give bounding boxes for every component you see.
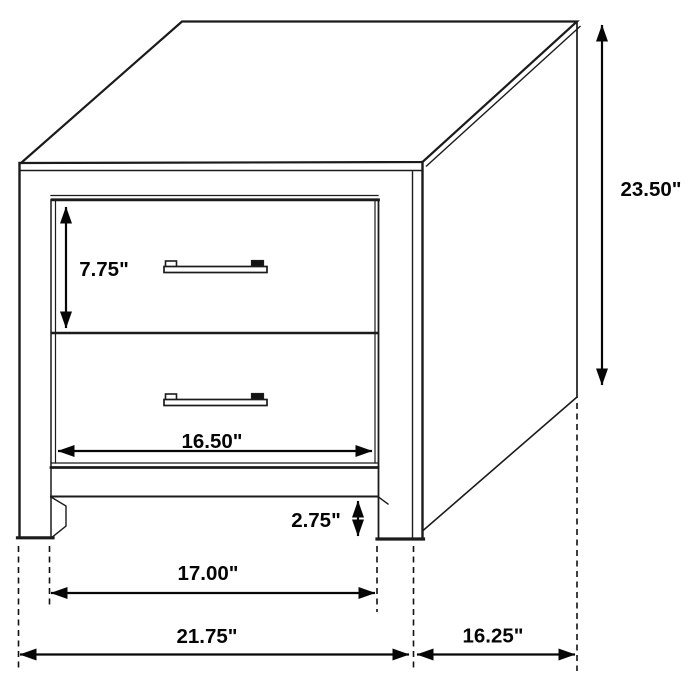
dimension-label-overall-width: 21.75" <box>176 625 237 648</box>
left-leg-inner-face <box>51 497 66 537</box>
dimension-label-overall-height: 23.50" <box>620 178 681 201</box>
dimension-label-leg-span: 17.00" <box>177 562 238 585</box>
drawer-handle-bottom <box>164 394 267 406</box>
handle-bar <box>164 400 267 406</box>
diagram-canvas: 23.50" 7.75" 16.50" 2.75" 17.00" 21.75" … <box>0 0 700 700</box>
dimension-label-drawer-height: 7.75" <box>79 258 129 281</box>
furniture-dimension-diagram: 23.50" 7.75" 16.50" 2.75" 17.00" 21.75" … <box>0 0 700 700</box>
dimension-label-drawer-width: 16.50" <box>181 430 242 453</box>
right-leg-inner-notch <box>379 497 389 504</box>
side-panel-bottom-edge <box>423 397 578 531</box>
top-surface <box>21 22 577 164</box>
dimension-label-overall-depth: 16.25" <box>462 625 523 648</box>
dimension-annotations: 23.50" 7.75" 16.50" 2.75" 17.00" 21.75" … <box>19 25 682 671</box>
drawer-handle-top <box>164 261 267 273</box>
handle-bar <box>164 267 267 273</box>
top-slab-right-edge <box>427 27 581 167</box>
dimension-label-base-clearance: 2.75" <box>291 509 341 532</box>
